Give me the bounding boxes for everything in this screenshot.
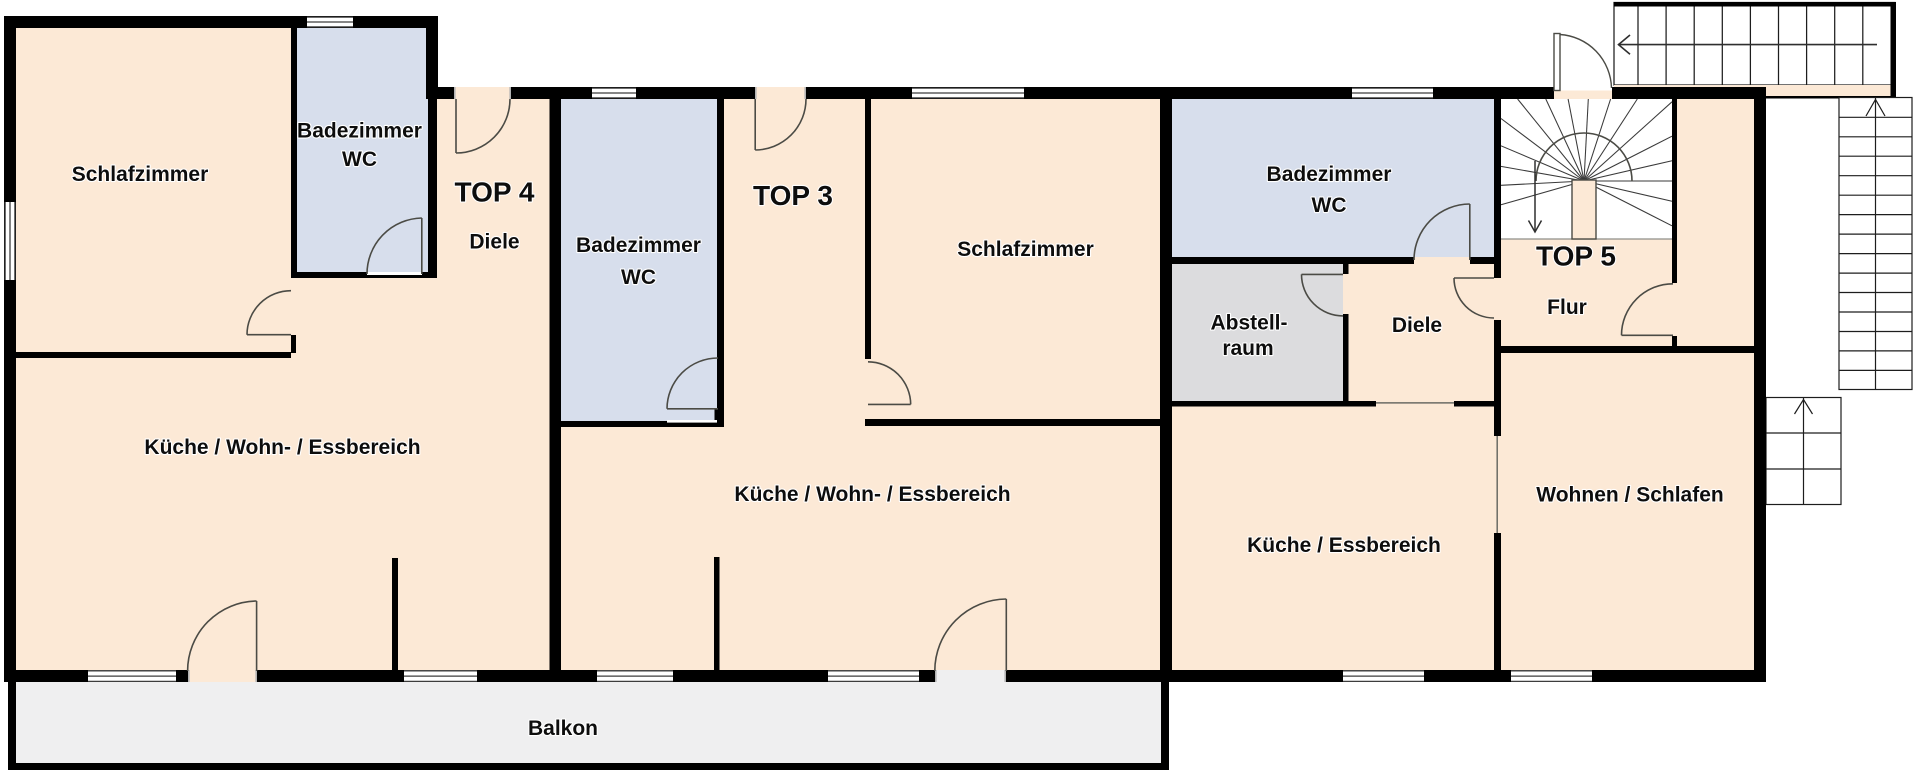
- svg-text:Küche / Wohn- / Essbereich: Küche / Wohn- / Essbereich: [734, 483, 1010, 506]
- svg-text:Schlafzimmer: Schlafzimmer: [957, 238, 1094, 261]
- svg-text:TOP 5: TOP 5: [1536, 241, 1616, 272]
- svg-text:WC: WC: [1312, 194, 1347, 217]
- svg-text:TOP 4: TOP 4: [455, 177, 535, 208]
- svg-text:raum: raum: [1222, 337, 1273, 360]
- svg-text:Küche / Wohn- / Essbereich: Küche / Wohn- / Essbereich: [144, 436, 420, 459]
- svg-text:Wohnen / Schlafen: Wohnen / Schlafen: [1536, 484, 1723, 507]
- svg-text:Küche / Essbereich: Küche / Essbereich: [1247, 534, 1441, 557]
- svg-text:Flur: Flur: [1547, 296, 1587, 319]
- svg-text:Diele: Diele: [469, 231, 519, 254]
- svg-text:Badezimmer: Badezimmer: [576, 234, 701, 257]
- svg-text:Balkon: Balkon: [528, 717, 598, 740]
- svg-text:WC: WC: [621, 266, 656, 289]
- svg-text:WC: WC: [342, 148, 377, 171]
- svg-text:Badezimmer: Badezimmer: [297, 120, 422, 143]
- svg-text:Abstell-: Abstell-: [1210, 311, 1287, 334]
- svg-text:TOP 3: TOP 3: [753, 180, 833, 211]
- svg-text:Badezimmer: Badezimmer: [1267, 163, 1392, 186]
- svg-text:Diele: Diele: [1392, 314, 1442, 337]
- svg-text:Schlafzimmer: Schlafzimmer: [72, 163, 209, 186]
